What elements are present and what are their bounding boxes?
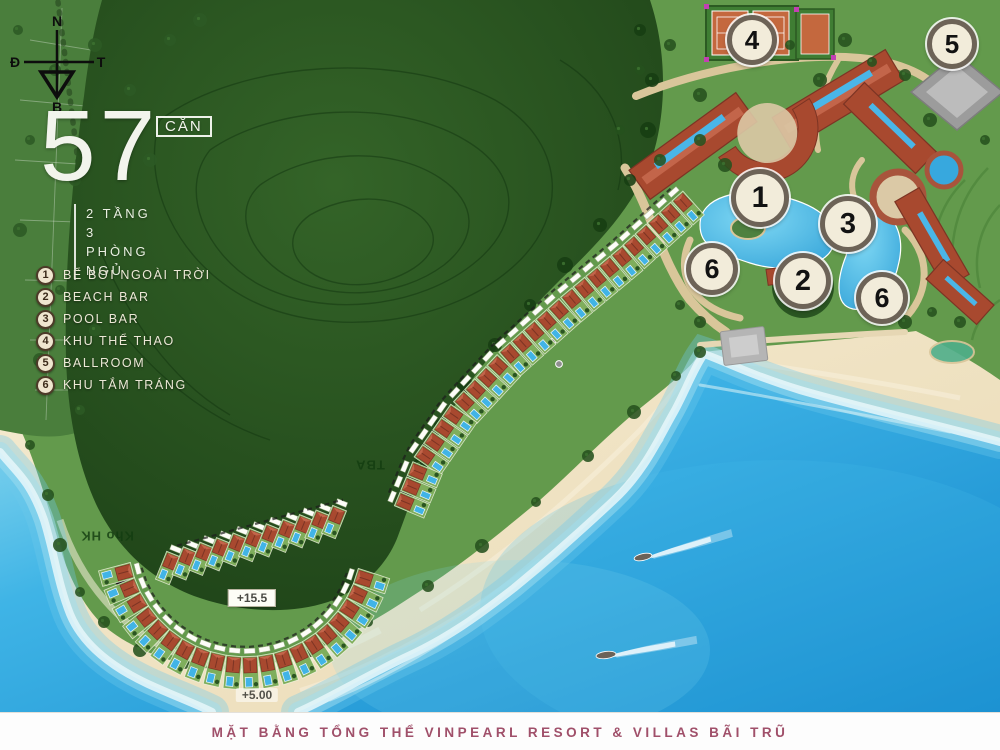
legend-item-number: 2	[36, 288, 55, 307]
compass-right-letter: T	[97, 54, 106, 70]
floors-line: 2 TẦNG	[86, 204, 159, 223]
legend-item-number: 4	[36, 332, 55, 351]
legend-item-number: 5	[36, 354, 55, 373]
plan-caption: MẶT BẰNG TỔNG THỂ VINPEARL RESORT & VILL…	[212, 725, 789, 740]
round-pool	[927, 153, 961, 187]
legend-item: 2BEACH BAR	[36, 286, 211, 308]
legend-item: 5BALLROOM	[36, 352, 211, 374]
legend-item: 1BỂ BƠI NGOÀI TRỜI	[36, 264, 211, 286]
unit-count: 57	[40, 96, 159, 196]
compass-left-letter: Đ	[10, 54, 20, 70]
hedge-court	[790, 274, 816, 300]
legend-item-number: 1	[36, 266, 55, 285]
legend-item-label: BALLROOM	[63, 356, 145, 370]
legend-item-label: KHU THỂ THAO	[63, 334, 175, 348]
pond	[930, 341, 974, 363]
legend-item-label: BỂ BƠI NGOÀI TRỜI	[63, 268, 211, 282]
unit-label-badge: CĂN	[156, 116, 212, 137]
legend-item: 6KHU TẮM TRÁNG	[36, 374, 211, 396]
legend-item-number: 6	[36, 376, 55, 395]
caption-bar: MẶT BẰNG TỔNG THỂ VINPEARL RESORT & VILL…	[0, 712, 1000, 750]
legend-item-label: KHU TẮM TRÁNG	[63, 378, 187, 392]
legend-item: 4KHU THỂ THAO	[36, 330, 211, 352]
pool-island	[731, 217, 765, 239]
tennis-courts	[704, 4, 836, 62]
compass-top-letter: N	[52, 13, 62, 29]
beach-bar-building	[766, 267, 788, 286]
legend-item-label: BEACH BAR	[63, 290, 150, 304]
legend-item-number: 3	[36, 310, 55, 329]
legend-panel: 1BỂ BƠI NGOÀI TRỜI2BEACH BAR3POOL BAR4KH…	[36, 264, 211, 396]
legend-item-label: POOL BAR	[63, 312, 139, 326]
resort-masterplan-poster: N B Đ T 57 CĂN 2 TẦNG 3 PHÒNG NGỦ 1BỂ BƠ…	[0, 0, 1000, 750]
legend-item: 3POOL BAR	[36, 308, 211, 330]
units-headline: 57 CĂN 2 TẦNG 3 PHÒNG NGỦ	[40, 96, 159, 196]
beach-deck	[720, 326, 768, 365]
